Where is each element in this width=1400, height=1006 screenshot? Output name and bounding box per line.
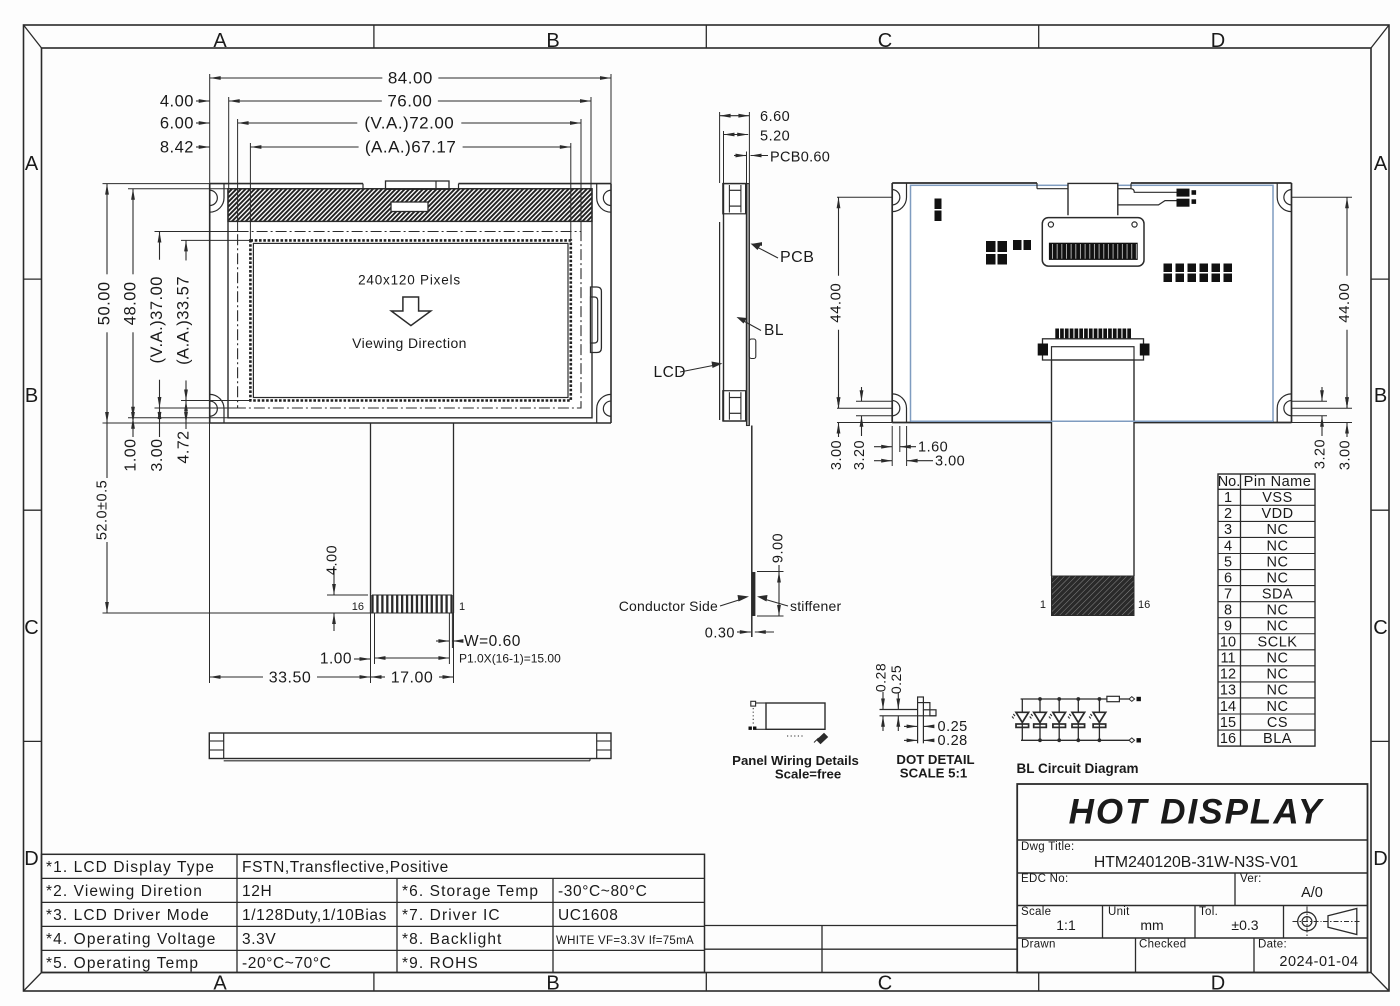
svg-text:240x120 Pixels: 240x120 Pixels (358, 273, 461, 288)
svg-text:-30°C~80°C: -30°C~80°C (558, 883, 647, 900)
svg-text:C: C (24, 617, 38, 639)
svg-text:12: 12 (1220, 667, 1236, 683)
svg-text:A: A (213, 973, 227, 995)
svg-text:C: C (1373, 617, 1387, 639)
svg-text:*6. Storage Temp: *6. Storage Temp (402, 883, 539, 900)
svg-text:mm: mm (1140, 917, 1163, 933)
svg-text:(A.A.)67.17: (A.A.)67.17 (365, 138, 457, 157)
svg-text:±0.3: ±0.3 (1231, 917, 1258, 933)
svg-text:52.0±0.5: 52.0±0.5 (95, 480, 111, 540)
svg-text:*2. Viewing Diretion: *2. Viewing Diretion (46, 883, 203, 900)
svg-text:1:1: 1:1 (1056, 917, 1076, 933)
svg-text:11: 11 (1220, 651, 1235, 667)
svg-text:1/128Duty,1/10Bias: 1/128Duty,1/10Bias (242, 907, 387, 924)
svg-text:stiffener: stiffener (790, 598, 841, 614)
svg-text:Dwg Title:: Dwg Title: (1021, 841, 1075, 853)
svg-text:NC: NC (1267, 667, 1289, 683)
svg-text:3: 3 (1224, 522, 1232, 538)
svg-text:NC: NC (1267, 699, 1289, 715)
svg-text:Checked: Checked (1139, 939, 1187, 951)
svg-text:FSTN,Transflective,Positive: FSTN,Transflective,Positive (242, 859, 449, 876)
svg-text:5.20: 5.20 (760, 129, 790, 145)
svg-text:3.3V: 3.3V (242, 931, 276, 948)
svg-text:CS: CS (1267, 715, 1288, 731)
svg-text:12H: 12H (242, 883, 272, 900)
svg-text:0.30: 0.30 (705, 626, 735, 642)
svg-text:*3. LCD Driver Mode: *3. LCD Driver Mode (46, 907, 210, 924)
svg-text:Conductor Side: Conductor Side (619, 598, 718, 614)
svg-text:C: C (878, 973, 892, 995)
svg-text:5: 5 (1224, 554, 1232, 570)
svg-text:1: 1 (1224, 490, 1232, 506)
svg-text:B: B (546, 973, 559, 995)
svg-text:9: 9 (1224, 619, 1232, 635)
svg-text:15: 15 (1220, 715, 1236, 731)
svg-text:Ver:: Ver: (1240, 873, 1262, 885)
svg-text:7: 7 (1224, 586, 1232, 602)
svg-text:*5. Operating Temp: *5. Operating Temp (46, 955, 199, 972)
svg-text:D: D (24, 848, 38, 870)
svg-text:VSS: VSS (1262, 490, 1293, 506)
svg-text:1.00: 1.00 (123, 438, 140, 471)
svg-text:A: A (25, 153, 39, 175)
svg-text:76.00: 76.00 (387, 92, 432, 111)
svg-text:Pin Name: Pin Name (1244, 474, 1312, 490)
svg-text:8.42: 8.42 (160, 138, 194, 156)
svg-text:1: 1 (1040, 599, 1046, 611)
svg-text:48.00: 48.00 (121, 281, 139, 325)
svg-text:4.72: 4.72 (176, 430, 193, 463)
svg-text:NC: NC (1267, 651, 1289, 667)
svg-text:A: A (1374, 153, 1388, 175)
svg-text:NC: NC (1267, 570, 1289, 586)
svg-text:44.00: 44.00 (828, 283, 845, 323)
svg-text:NC: NC (1267, 554, 1289, 570)
svg-text:D: D (1373, 848, 1387, 870)
svg-text:NC: NC (1267, 619, 1289, 635)
svg-text:50.00: 50.00 (95, 281, 113, 325)
svg-text:14: 14 (1220, 699, 1236, 715)
svg-text:*9. ROHS: *9. ROHS (402, 955, 479, 972)
svg-text:Tol.: Tol. (1199, 906, 1218, 918)
svg-text:BL Circuit Diagram: BL Circuit Diagram (1016, 761, 1138, 776)
svg-text:8: 8 (1224, 602, 1232, 618)
svg-text:6: 6 (1224, 570, 1232, 586)
svg-text:Viewing Direction: Viewing Direction (352, 335, 467, 351)
svg-text:1.00: 1.00 (320, 651, 352, 668)
svg-text:6.00: 6.00 (160, 114, 194, 132)
svg-text:NC: NC (1267, 522, 1289, 538)
svg-text:(V.A.)37.00: (V.A.)37.00 (148, 276, 166, 363)
svg-text:SCLK: SCLK (1258, 635, 1298, 651)
svg-text:WHITE VF=3.3V If=75mA: WHITE VF=3.3V If=75mA (556, 935, 694, 947)
svg-text:PCB: PCB (780, 249, 814, 266)
svg-text:Scale: Scale (1021, 906, 1051, 918)
svg-text:NC: NC (1267, 683, 1289, 699)
svg-text:2: 2 (1224, 506, 1232, 522)
svg-text:A/0: A/0 (1301, 885, 1323, 901)
svg-text:Drawn: Drawn (1021, 939, 1056, 951)
svg-text:(A.A.)33.57: (A.A.)33.57 (174, 276, 192, 365)
svg-text:W=0.60: W=0.60 (464, 633, 521, 650)
svg-text:*8. Backlight: *8. Backlight (402, 931, 502, 948)
svg-text:*4. Operating Voltage: *4. Operating Voltage (46, 931, 216, 948)
svg-text:0.28: 0.28 (873, 663, 889, 692)
svg-text:SDA: SDA (1262, 586, 1293, 602)
svg-text:84.00: 84.00 (388, 69, 433, 88)
svg-text:44.00: 44.00 (1336, 283, 1353, 323)
svg-text:*7. Driver IC: *7. Driver IC (402, 907, 501, 924)
svg-text:SCALE 5:1: SCALE 5:1 (900, 766, 967, 781)
svg-text:13: 13 (1220, 683, 1236, 699)
svg-text:9.00: 9.00 (771, 533, 787, 563)
svg-text:4: 4 (1224, 538, 1232, 554)
svg-text:3.00: 3.00 (829, 440, 845, 470)
svg-text:Scale=free: Scale=free (775, 767, 841, 782)
svg-text:33.50: 33.50 (269, 669, 312, 686)
svg-text:B: B (25, 385, 38, 407)
svg-text:BL: BL (764, 322, 784, 339)
svg-text:16: 16 (1138, 599, 1150, 611)
svg-text:0.28: 0.28 (938, 733, 968, 749)
svg-text:0.25: 0.25 (888, 665, 904, 694)
svg-text:3.20: 3.20 (852, 440, 868, 470)
svg-text:16: 16 (1220, 731, 1236, 747)
svg-text:A: A (213, 30, 227, 52)
svg-text:P1.0X(16-1)=15.00: P1.0X(16-1)=15.00 (459, 652, 561, 666)
svg-text:VDD: VDD (1261, 506, 1293, 522)
svg-text:C: C (878, 30, 892, 52)
svg-text:HOT DISPLAY: HOT DISPLAY (1069, 793, 1324, 832)
svg-text:3.20: 3.20 (1313, 439, 1329, 469)
svg-text:No.: No. (1218, 474, 1241, 490)
svg-text:(V.A.)72.00: (V.A.)72.00 (364, 114, 454, 133)
svg-text:6.60: 6.60 (760, 109, 790, 125)
svg-text:BLA: BLA (1263, 731, 1292, 747)
svg-text:4.00: 4.00 (325, 545, 341, 575)
svg-text:2024-01-04: 2024-01-04 (1279, 954, 1358, 970)
svg-text:*1. LCD Display Type: *1. LCD Display Type (46, 859, 215, 876)
svg-text:B: B (546, 30, 559, 52)
svg-text:NC: NC (1267, 602, 1289, 618)
svg-text:Unit: Unit (1108, 906, 1130, 918)
svg-text:17.00: 17.00 (391, 669, 434, 686)
svg-text:1: 1 (459, 601, 465, 613)
svg-text:D: D (1211, 973, 1225, 995)
svg-text:-20°C~70°C: -20°C~70°C (242, 955, 331, 972)
svg-text:LCD: LCD (653, 364, 686, 381)
svg-text:UC1608: UC1608 (558, 907, 618, 924)
svg-text:EDC No:: EDC No: (1021, 873, 1068, 885)
svg-text:3.00: 3.00 (1338, 440, 1354, 470)
svg-text:3.00: 3.00 (149, 438, 166, 471)
svg-text:Date:: Date: (1258, 939, 1287, 951)
svg-text:HTM240120B-31W-N3S-V01: HTM240120B-31W-N3S-V01 (1094, 854, 1298, 871)
svg-text:10: 10 (1220, 635, 1236, 651)
svg-text:16: 16 (352, 601, 364, 613)
svg-text:D: D (1211, 30, 1225, 52)
svg-text:4.00: 4.00 (160, 92, 194, 110)
svg-text:NC: NC (1267, 538, 1289, 554)
svg-text:B: B (1374, 385, 1387, 407)
svg-text:PCB0.60: PCB0.60 (770, 150, 830, 166)
svg-text:3.00: 3.00 (935, 454, 965, 470)
